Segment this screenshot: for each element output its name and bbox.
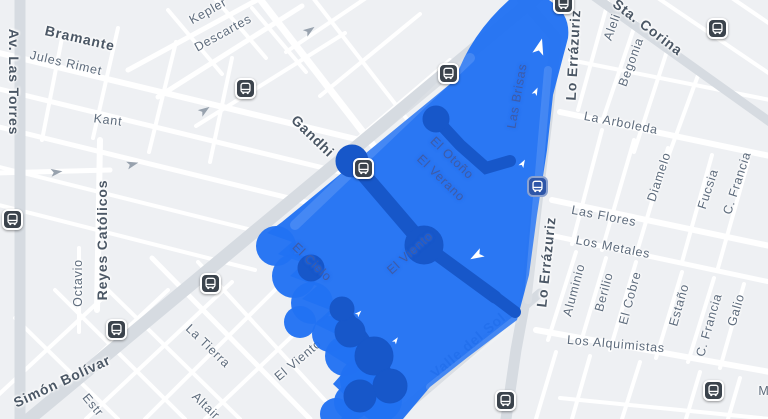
bus-stop-icon[interactable] [353,158,374,179]
map-canvas[interactable]: Av. Las TorresBramanteJules RimetKantKep… [0,0,768,419]
bus-stop-icon[interactable] [527,176,548,197]
bus-icon [707,384,720,397]
bus-icon [499,394,512,407]
bus-icon [204,277,217,290]
bus-icon [531,180,544,193]
bus-stop-icon[interactable] [200,273,221,294]
bus-icon [557,0,570,10]
bus-stop-icon[interactable] [495,390,516,411]
bus-stop-icon[interactable] [106,319,127,340]
bus-stop-icon[interactable] [553,0,574,14]
selected-area-overlay[interactable] [0,0,768,419]
bus-stop-icon[interactable] [2,209,23,230]
bus-stop-icon[interactable] [235,78,256,99]
bus-stop-icon[interactable] [703,380,724,401]
bus-icon [357,162,370,175]
bus-icon [711,22,724,35]
bus-icon [6,213,19,226]
bus-stop-icon[interactable] [707,18,728,39]
bus-icon [110,323,123,336]
bus-icon [239,82,252,95]
bus-icon [442,67,455,80]
bus-stop-icon[interactable] [438,63,459,84]
